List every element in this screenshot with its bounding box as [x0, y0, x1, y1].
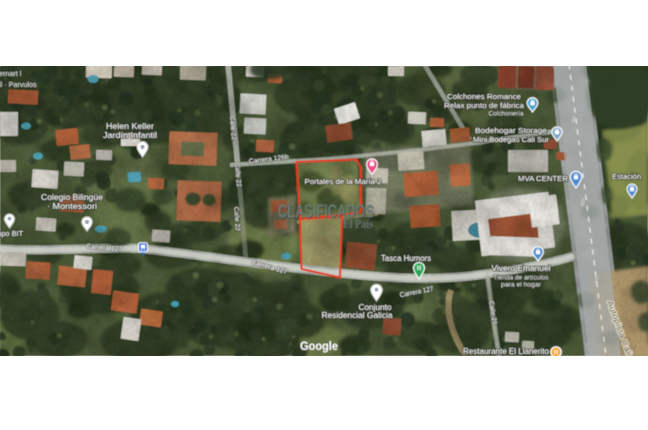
svg-text:Google: Google	[300, 339, 338, 353]
svg-text:El País: El País	[343, 217, 373, 231]
svg-text:Vivero Emanuel: Vivero Emanuel	[492, 264, 551, 273]
svg-text:Residencial Galicia: Residencial Galicia	[322, 311, 394, 320]
svg-text:Jardín Infantil: Jardín Infantil	[103, 131, 157, 140]
svg-text:ternart l: ternart l	[0, 69, 22, 78]
svg-text:Tienda de artículos: Tienda de artículos	[494, 275, 549, 282]
svg-text:Portales de la María 2: Portales de la María 2	[305, 177, 382, 186]
svg-text:Relax punto de fábrica: Relax punto de fábrica	[444, 101, 525, 110]
svg-text:Mini Bodegas Cali Sur: Mini Bodegas Cali Sur	[473, 135, 550, 144]
svg-text:Restaurante El Llanerito: Restaurante El Llanerito	[463, 347, 550, 356]
svg-text:Colegio Bilingüe: Colegio Bilingüe	[41, 193, 103, 202]
svg-text:Estación: Estación	[612, 172, 641, 181]
svg-text:Colchones Romance: Colchones Romance	[447, 92, 521, 101]
svg-text:Grupo BIT: Grupo BIT	[0, 229, 24, 238]
svg-text:Bodehogar Storage: Bodehogar Storage	[475, 126, 547, 135]
svg-text:para el hogar: para el hogar	[501, 282, 542, 289]
svg-text:til · Parvulos: til · Parvulos	[0, 80, 37, 89]
svg-text:MVA CENTER: MVA CENTER	[518, 174, 569, 183]
svg-text:Tasca Humors: Tasca Humors	[381, 254, 431, 263]
svg-text:Colchonería: Colchonería	[489, 111, 525, 118]
svg-text:Helen Keller: Helen Keller	[106, 122, 154, 131]
svg-text:· Montessori: · Montessori	[47, 202, 97, 211]
